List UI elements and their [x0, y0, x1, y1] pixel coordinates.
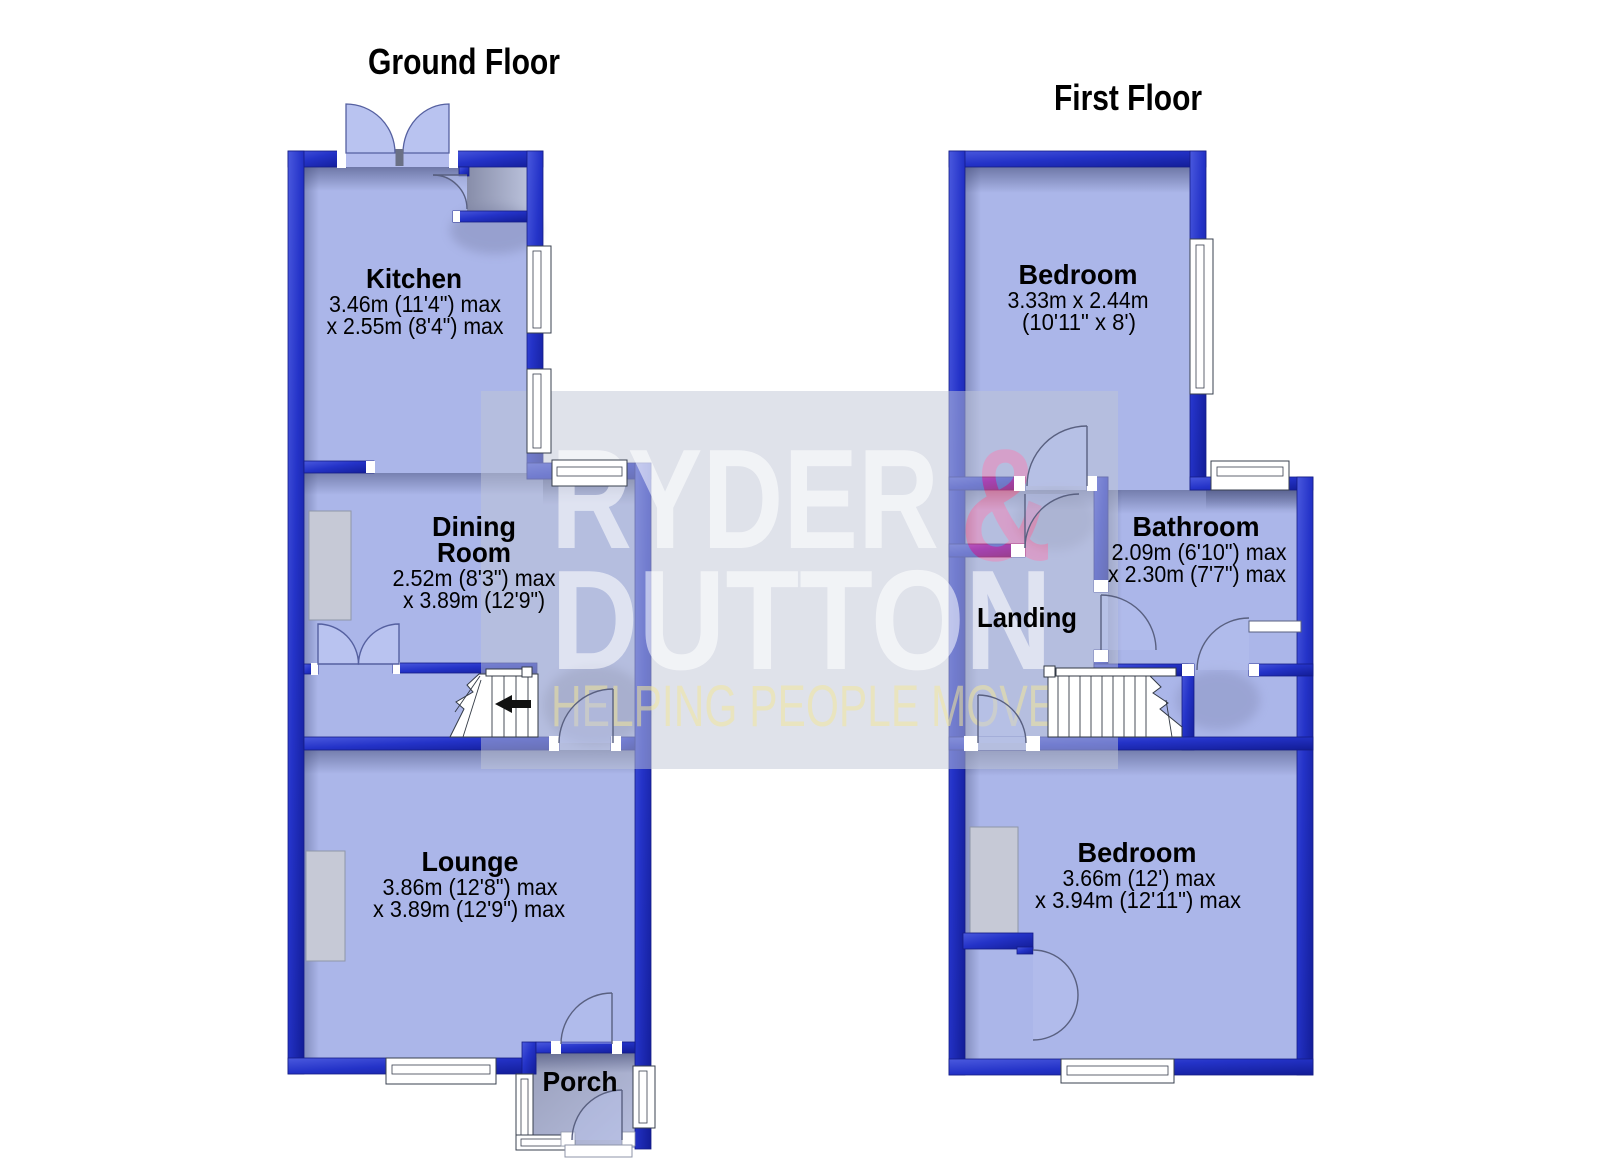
svg-text:Lounge: Lounge — [422, 846, 519, 877]
svg-text:x 3.89m (12'9") max: x 3.89m (12'9") max — [373, 896, 565, 922]
svg-text:Ground Floor: Ground Floor — [368, 41, 560, 82]
svg-text:x 2.55m (8'4") max: x 2.55m (8'4") max — [327, 313, 504, 339]
svg-text:Kitchen: Kitchen — [366, 263, 462, 294]
svg-text:Landing: Landing — [977, 602, 1077, 633]
svg-text:First Floor: First Floor — [1054, 77, 1202, 118]
svg-text:Bedroom: Bedroom — [1019, 259, 1138, 290]
svg-text:Porch: Porch — [543, 1066, 618, 1097]
svg-text:Bathroom: Bathroom — [1133, 511, 1260, 542]
svg-text:Bedroom: Bedroom — [1078, 837, 1197, 868]
svg-text:Room: Room — [437, 537, 511, 568]
svg-text:x 2.30m (7'7") max: x 2.30m (7'7") max — [1108, 561, 1286, 587]
svg-text:x 3.89m (12'9"): x 3.89m (12'9") — [403, 587, 545, 613]
svg-text:x 3.94m (12'11") max: x 3.94m (12'11") max — [1035, 887, 1241, 913]
svg-text:(10'11" x 8'): (10'11" x 8') — [1022, 309, 1136, 335]
